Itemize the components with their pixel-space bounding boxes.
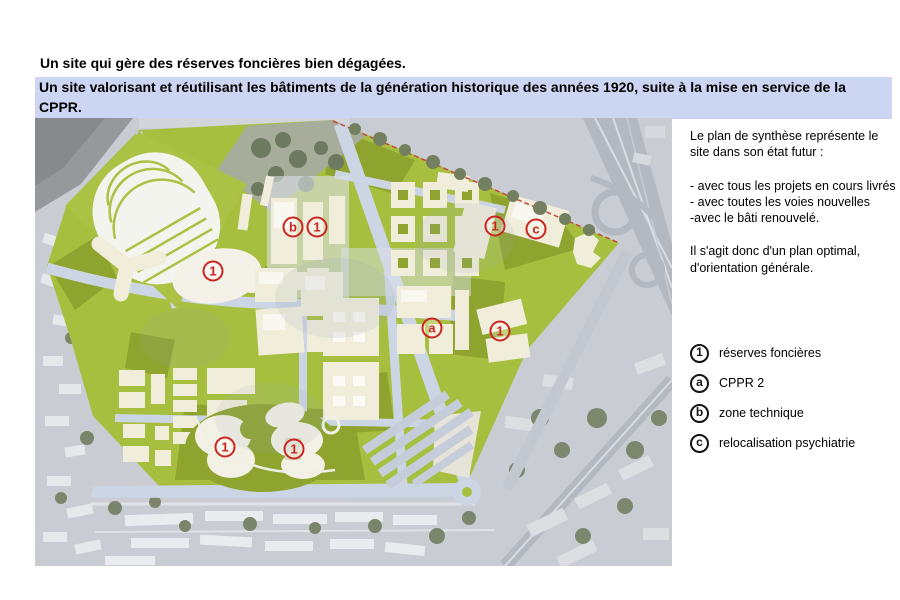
legend: 1réserves foncièresaCPPR 2bzone techniqu…	[690, 344, 896, 453]
page-subtitle: Un site valorisant et réutilisant les bâ…	[35, 77, 892, 119]
site-plan-map: 1b11ca111	[35, 118, 672, 566]
map-marker-1: 1	[215, 437, 236, 458]
legend-label: zone technique	[719, 405, 804, 421]
panel-bullets: - avec tous les projets en cours livrés-…	[690, 178, 896, 227]
legend-label: CPPR 2	[719, 375, 764, 391]
legend-symbol-icon: b	[690, 404, 709, 423]
map-markers: 1b11ca111	[35, 118, 672, 566]
legend-symbol-icon: 1	[690, 344, 709, 363]
map-marker-1: 1	[490, 321, 511, 342]
panel-intro: Le plan de synthèse représente le site d…	[690, 128, 896, 161]
panel-bullet: -avec le bâti renouvelé.	[690, 210, 896, 226]
map-marker-a: a	[422, 318, 443, 339]
map-marker-b: b	[283, 217, 304, 238]
map-marker-1: 1	[203, 261, 224, 282]
legend-item-b: bzone technique	[690, 404, 896, 423]
map-marker-1: 1	[307, 217, 328, 238]
legend-item-c: crelocalisation psychiatrie	[690, 434, 896, 453]
legend-item-a: aCPPR 2	[690, 374, 896, 393]
legend-symbol-icon: a	[690, 374, 709, 393]
map-marker-1: 1	[485, 216, 506, 237]
legend-symbol-icon: c	[690, 434, 709, 453]
map-marker-1: 1	[284, 439, 305, 460]
panel-bullet: - avec toutes les voies nouvelles	[690, 194, 896, 210]
page-title: Un site qui gère des réserves foncières …	[40, 55, 406, 72]
map-marker-c: c	[526, 219, 547, 240]
panel-conclusion: Il s'agit donc d'un plan optimal, d'orie…	[690, 243, 896, 276]
side-panel: Le plan de synthèse représente le site d…	[690, 128, 896, 464]
slide: Un site qui gère des réserves foncières …	[0, 0, 900, 600]
panel-bullet: - avec tous les projets en cours livrés	[690, 178, 896, 194]
legend-item-1: 1réserves foncières	[690, 344, 896, 363]
legend-label: réserves foncières	[719, 345, 821, 361]
legend-label: relocalisation psychiatrie	[719, 435, 855, 451]
